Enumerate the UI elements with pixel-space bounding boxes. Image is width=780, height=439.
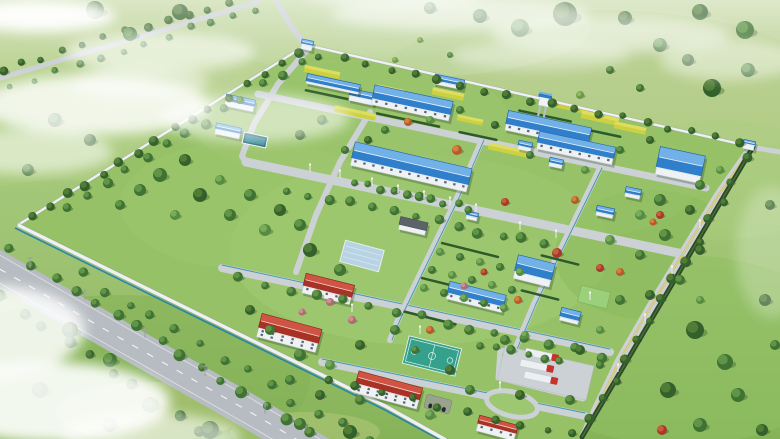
tree-highlight — [128, 302, 133, 307]
tree-highlight — [566, 395, 572, 401]
tree-highlight — [29, 212, 34, 217]
tree-highlight — [426, 326, 431, 331]
tree-highlight — [194, 189, 203, 198]
tree-highlight — [636, 84, 641, 89]
tree-highlight — [27, 261, 33, 267]
tree-highlight — [295, 349, 302, 356]
tree-highlight — [696, 245, 702, 251]
tree-highlight — [221, 357, 227, 363]
tree-highlight — [426, 410, 432, 416]
tree-highlight — [712, 133, 717, 138]
tree-highlight — [304, 244, 313, 253]
tree-highlight — [553, 248, 559, 254]
tree-highlight — [694, 419, 703, 428]
tree-highlight — [568, 429, 573, 434]
tree-highlight — [171, 210, 177, 216]
tree-highlight — [409, 394, 414, 399]
tree-highlight — [339, 295, 345, 301]
mist-patch — [450, 42, 630, 70]
tree-highlight — [5, 244, 11, 250]
tree-highlight — [488, 281, 493, 286]
tree-highlight — [391, 325, 397, 331]
tree-highlight — [312, 290, 318, 296]
tree-highlight — [771, 340, 777, 346]
tree-highlight — [144, 153, 150, 159]
street-lamp-head — [351, 303, 353, 305]
tree-highlight — [348, 316, 353, 321]
tree-highlight — [456, 82, 461, 87]
tree-highlight — [389, 68, 393, 72]
tree-highlight — [365, 302, 370, 307]
tree-highlight — [595, 111, 600, 116]
tree-highlight — [472, 228, 479, 235]
tree-highlight — [80, 182, 86, 188]
tree-highlight — [596, 361, 601, 366]
tree-highlight — [658, 425, 664, 431]
tree-highlight — [381, 126, 386, 131]
tree-highlight — [149, 136, 155, 142]
tree-highlight — [356, 340, 362, 346]
tree-highlight — [260, 224, 267, 231]
tree-highlight — [456, 106, 461, 111]
street-lamp-head — [671, 265, 673, 267]
tree-highlight — [392, 308, 398, 314]
tree-highlight — [351, 180, 355, 184]
tree-highlight — [491, 329, 496, 334]
tree-highlight — [581, 166, 586, 171]
tree-highlight — [426, 116, 431, 121]
tree-highlight — [104, 354, 113, 363]
tree-highlight — [101, 288, 107, 294]
tree-highlight — [571, 196, 576, 201]
tree-highlight — [448, 271, 453, 276]
tree-highlight — [233, 272, 239, 278]
tree-highlight — [496, 263, 501, 268]
tree-highlight — [716, 166, 721, 171]
tree-highlight — [299, 309, 303, 313]
tree-highlight — [453, 145, 459, 151]
tree-highlight — [646, 318, 651, 323]
tree-highlight — [446, 365, 452, 371]
tree-highlight — [420, 284, 425, 289]
tree-highlight — [727, 179, 732, 184]
tree-highlight — [428, 266, 433, 271]
tree-highlight — [656, 211, 661, 216]
tree-highlight — [259, 79, 264, 84]
tree-highlight — [174, 350, 181, 357]
tree-highlight — [245, 365, 250, 370]
tree-highlight — [159, 337, 164, 342]
tree-highlight — [377, 186, 382, 191]
tree-highlight — [465, 206, 470, 211]
tree-highlight — [464, 408, 469, 413]
tree-highlight — [63, 203, 69, 209]
tree-highlight — [326, 298, 331, 303]
tree-highlight — [616, 268, 621, 273]
tree-highlight — [689, 127, 693, 131]
tree-highlight — [736, 139, 742, 145]
tree-highlight — [596, 326, 601, 331]
tree-highlight — [633, 336, 638, 341]
tree-highlight — [341, 146, 346, 151]
street-lamp-head — [419, 325, 421, 327]
tree-highlight — [262, 282, 267, 287]
tree-highlight — [266, 325, 272, 331]
tree-highlight — [390, 206, 396, 212]
tree-highlight — [79, 268, 85, 274]
tree-highlight — [236, 387, 243, 394]
tree-highlight — [63, 188, 69, 194]
tree-highlight — [304, 193, 309, 198]
tree-highlight — [697, 239, 702, 244]
tree-highlight — [435, 215, 441, 221]
tree-highlight — [103, 178, 109, 184]
tree-highlight — [335, 264, 342, 271]
tree-highlight — [52, 67, 56, 71]
tree-highlight — [456, 200, 461, 205]
tree-highlight — [646, 136, 651, 141]
tree-highlight — [516, 421, 521, 426]
tree-highlight — [481, 88, 486, 93]
tree-highlight — [620, 355, 626, 361]
tree-highlight — [91, 299, 96, 304]
tree-highlight — [279, 71, 285, 77]
tree-highlight — [295, 418, 302, 425]
tree-highlight — [116, 200, 122, 206]
tree-highlight — [263, 402, 268, 407]
tree-highlight — [72, 287, 78, 293]
street-lamp-head — [699, 219, 701, 221]
tree-highlight — [681, 257, 688, 264]
tree-highlight — [686, 205, 692, 211]
tree-highlight — [650, 219, 654, 223]
tree-highlight — [86, 350, 91, 355]
tree-highlight — [606, 66, 611, 71]
tree-highlight — [246, 305, 252, 311]
mist-patch — [65, 32, 255, 72]
tree-highlight — [757, 424, 764, 431]
tree-highlight — [516, 233, 523, 240]
tree-highlight — [544, 340, 551, 347]
tree-highlight — [540, 240, 546, 246]
tree-highlight — [721, 199, 726, 204]
tree-highlight — [636, 250, 642, 256]
tree-highlight — [315, 410, 321, 416]
tree-highlight — [527, 98, 532, 103]
tree-highlight — [444, 320, 450, 326]
tree-highlight — [704, 80, 715, 91]
tree-highlight — [576, 91, 581, 96]
tree-highlight — [225, 209, 232, 216]
tree-highlight — [368, 203, 373, 208]
tree-highlight — [344, 426, 353, 435]
tree-highlight — [460, 294, 465, 299]
tree-highlight — [326, 360, 332, 366]
tree-highlight — [556, 357, 561, 362]
tree-highlight — [163, 140, 168, 145]
tree-highlight — [404, 118, 409, 123]
tree-highlight — [403, 191, 408, 196]
tree-highlight — [114, 310, 121, 317]
street-lamp-head — [449, 196, 451, 198]
tree-highlight — [585, 414, 591, 420]
street-lamp-head — [644, 313, 646, 315]
tree-highlight — [356, 395, 362, 401]
tree-highlight — [281, 414, 288, 421]
tree-highlight — [415, 192, 421, 198]
tree-highlight — [636, 210, 642, 216]
tree-highlight — [432, 75, 438, 81]
tree-highlight — [379, 389, 383, 393]
tree-highlight — [501, 198, 506, 203]
tree-highlight — [481, 269, 485, 273]
tree-highlight — [346, 197, 352, 203]
tree-highlight — [507, 346, 513, 352]
mist-patch — [160, 94, 350, 142]
tree-highlight — [597, 353, 603, 359]
tree-highlight — [466, 385, 472, 391]
tree-highlight — [287, 399, 292, 404]
tree-highlight — [655, 194, 662, 201]
tree-highlight — [364, 136, 369, 141]
truck-cab — [546, 365, 554, 373]
tree-highlight — [84, 192, 89, 197]
tree-highlight — [154, 169, 163, 178]
tree-highlight — [135, 149, 141, 155]
tree-highlight — [614, 378, 619, 383]
tree-highlight — [365, 181, 369, 185]
tree-highlight — [316, 390, 322, 396]
tree-highlight — [480, 299, 485, 304]
street-lamp-head — [555, 229, 557, 231]
tree-highlight — [121, 166, 126, 171]
tree-highlight — [476, 258, 481, 263]
tree-highlight — [461, 283, 465, 287]
tree-highlight — [656, 294, 662, 300]
tree-highlight — [646, 290, 652, 296]
tree-highlight — [197, 340, 202, 345]
tree-highlight — [413, 213, 417, 217]
tree-highlight — [244, 80, 249, 85]
tree-highlight — [508, 286, 513, 291]
tree-highlight — [433, 404, 438, 409]
tree-highlight — [325, 195, 331, 201]
tree-highlight — [616, 146, 621, 151]
tree-highlight — [145, 311, 151, 317]
tree-highlight — [596, 264, 601, 269]
tree-highlight — [718, 355, 728, 365]
tree-highlight — [391, 187, 396, 192]
tree-highlight — [351, 381, 357, 387]
tree-highlight — [644, 118, 649, 123]
tree-highlight — [500, 304, 505, 309]
tree-highlight — [521, 331, 526, 336]
tree-highlight — [287, 287, 293, 293]
tree-highlight — [704, 214, 710, 220]
tree-highlight — [660, 229, 667, 236]
street-lamp-head — [423, 190, 425, 192]
tree-highlight — [180, 154, 187, 161]
tree-highlight — [664, 126, 668, 130]
tree-highlight — [676, 275, 682, 281]
tree-highlight — [135, 184, 142, 191]
street-lamp-head — [589, 291, 591, 293]
tree-highlight — [101, 171, 106, 176]
aerial-site-render — [0, 0, 780, 439]
tree-highlight — [526, 151, 531, 156]
tree-highlight — [411, 346, 416, 351]
tree-highlight — [545, 427, 549, 431]
tree-highlight — [465, 325, 471, 331]
tree-highlight — [436, 248, 441, 253]
scene-svg — [0, 0, 780, 439]
street-lamp-head — [339, 169, 341, 171]
tree-highlight — [217, 377, 222, 382]
tree-highlight — [606, 235, 612, 241]
tree-highlight — [661, 383, 671, 393]
tree-highlight — [576, 345, 582, 351]
tree-highlight — [732, 389, 741, 398]
tree-highlight — [132, 320, 139, 327]
tree-highlight — [305, 427, 312, 434]
tree-highlight — [455, 222, 461, 228]
street-lamp-head — [397, 184, 399, 186]
tree-highlight — [295, 219, 302, 226]
tree-highlight — [339, 418, 345, 424]
tree-highlight — [216, 175, 222, 181]
tree-highlight — [514, 296, 519, 301]
tree-highlight — [526, 351, 530, 355]
street-lamp-head — [309, 163, 311, 165]
tree-highlight — [541, 355, 546, 360]
tree-highlight — [440, 289, 445, 294]
tree-highlight — [245, 189, 252, 196]
tree-highlight — [53, 274, 59, 280]
tree-highlight — [616, 295, 622, 301]
street-lamp-head — [519, 221, 521, 223]
tree-highlight — [286, 375, 292, 381]
tree-highlight — [262, 71, 267, 76]
street-lamp-head — [617, 363, 619, 365]
tree-highlight — [687, 322, 698, 333]
tree-highlight — [696, 180, 702, 186]
tree-highlight — [501, 335, 507, 341]
tree-highlight — [412, 70, 417, 75]
tree-highlight — [268, 380, 274, 386]
tree-highlight — [502, 90, 508, 96]
tree-highlight — [468, 276, 473, 281]
street-lamp-head — [499, 381, 501, 383]
tree-highlight — [477, 342, 482, 347]
tree-highlight — [47, 203, 52, 208]
tree-highlight — [418, 311, 423, 316]
tree-highlight — [599, 394, 604, 399]
tree-highlight — [667, 274, 673, 280]
tree-highlight — [114, 158, 120, 164]
tree-highlight — [427, 195, 432, 200]
tree-highlight — [493, 344, 497, 348]
street-lamp-head — [371, 177, 373, 179]
tree-highlight — [743, 153, 749, 159]
tree-highlight — [275, 204, 282, 211]
tree-highlight — [548, 99, 554, 105]
tree-highlight — [170, 324, 176, 330]
tree-highlight — [0, 67, 5, 73]
truck-cab — [550, 377, 558, 385]
tree-highlight — [516, 268, 521, 273]
tree-highlight — [571, 105, 576, 110]
tree-highlight — [439, 201, 443, 205]
tree-highlight — [516, 390, 522, 396]
tree-highlight — [456, 253, 461, 258]
tree-highlight — [500, 233, 505, 238]
tree-highlight — [696, 296, 701, 301]
tree-highlight — [620, 113, 624, 117]
street-lamp-head — [475, 203, 477, 205]
tree-highlight — [325, 376, 330, 381]
tree-highlight — [492, 416, 497, 421]
tree-highlight — [283, 188, 288, 193]
tree-highlight — [491, 121, 496, 126]
mist-patch — [70, 66, 210, 98]
